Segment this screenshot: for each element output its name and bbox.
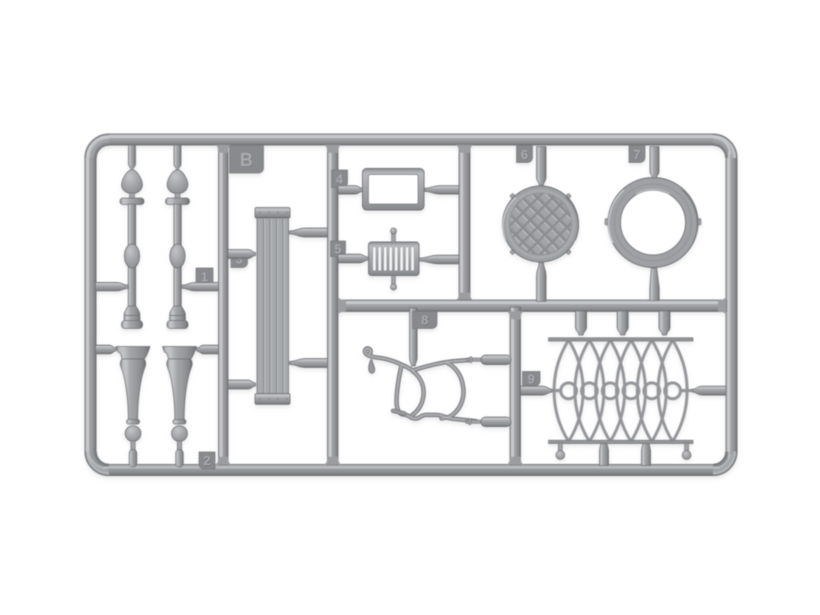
svg-text:9: 9 bbox=[528, 371, 535, 386]
svg-text:8: 8 bbox=[421, 313, 428, 328]
svg-text:7: 7 bbox=[633, 147, 640, 162]
svg-text:2: 2 bbox=[203, 453, 210, 468]
svg-text:6: 6 bbox=[521, 147, 528, 162]
svg-text:B: B bbox=[240, 150, 253, 170]
svg-text:4: 4 bbox=[336, 171, 344, 186]
